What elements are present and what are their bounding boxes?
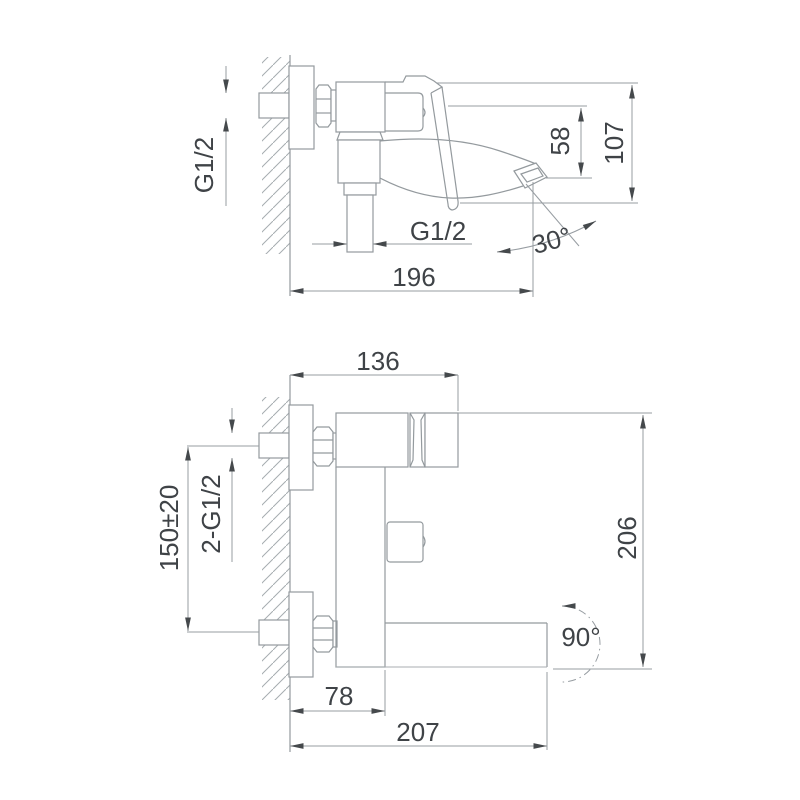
- dim-label-overall-height: 107: [599, 121, 629, 164]
- cartridge: [385, 93, 425, 131]
- escutcheon-plate-bottom: [289, 592, 313, 677]
- inlet-pipe: [259, 93, 289, 118]
- dim-label-overall-length: 207: [396, 717, 439, 747]
- dim-spout-drop: 58: [448, 106, 592, 178]
- wall-hatch: [262, 57, 290, 254]
- dim-shower-outlet-thread: G1/2: [312, 216, 472, 246]
- washer: [331, 90, 336, 121]
- inlet-pipe-bottom: [259, 620, 289, 645]
- escutcheon-plate-top: [289, 405, 313, 490]
- dim-inlet-threads: 2-G1/2: [196, 408, 232, 562]
- dim-label-spout-angle: 30°: [529, 221, 575, 260]
- dim-swivel-angle: 90°: [561, 606, 600, 682]
- dim-label-spout-drop: 58: [545, 127, 575, 156]
- dim-overall-depth: 196: [290, 262, 533, 292]
- dim-spout-angle: 30°: [497, 182, 596, 297]
- dim-label-swivel-angle: 90°: [561, 622, 600, 652]
- dim-label-body-depth: 136: [356, 346, 399, 376]
- mounting-nut: [316, 85, 331, 127]
- side-view: G1/2 58 107 G1/2 30°: [189, 55, 638, 297]
- dim-inlet-thread: G1/2: [189, 66, 226, 206]
- mounting-nut-top: [313, 427, 333, 466]
- dim-overall-height: 206: [458, 413, 652, 669]
- escutcheon-plate: [289, 66, 314, 149]
- faucet-dimension-drawing: G1/2 58 107 G1/2 30°: [0, 0, 800, 800]
- front-view: 136 150±20 2-G1/2 206 90°: [154, 346, 652, 752]
- valve-body: [336, 82, 385, 183]
- dim-label-overall-depth: 196: [392, 262, 435, 292]
- diverter-knob: [387, 522, 425, 562]
- mounting-nut-bottom: [313, 616, 333, 652]
- lever-handle: [385, 76, 458, 210]
- dim-label-overall-height: 206: [612, 516, 642, 559]
- inlet-pipe-top: [259, 433, 289, 458]
- swivel-spout: [336, 623, 547, 667]
- handle-grip: [425, 413, 458, 467]
- technical-drawing-page: G1/2 58 107 G1/2 30°: [0, 0, 800, 800]
- dim-label-inlet-threads: 2-G1/2: [196, 474, 226, 554]
- handle-assembly: [410, 413, 458, 467]
- spout: [380, 139, 547, 198]
- dim-label-inlet-thread: G1/2: [189, 137, 219, 193]
- dim-label-shower-outlet-thread: G1/2: [410, 216, 466, 246]
- shower-outlet-pipe: [344, 183, 376, 252]
- dim-body-depth: 136: [290, 346, 458, 411]
- dim-label-inlet-spacing: 150±20: [154, 485, 184, 572]
- dim-label-wall-to-spout: 78: [325, 681, 354, 711]
